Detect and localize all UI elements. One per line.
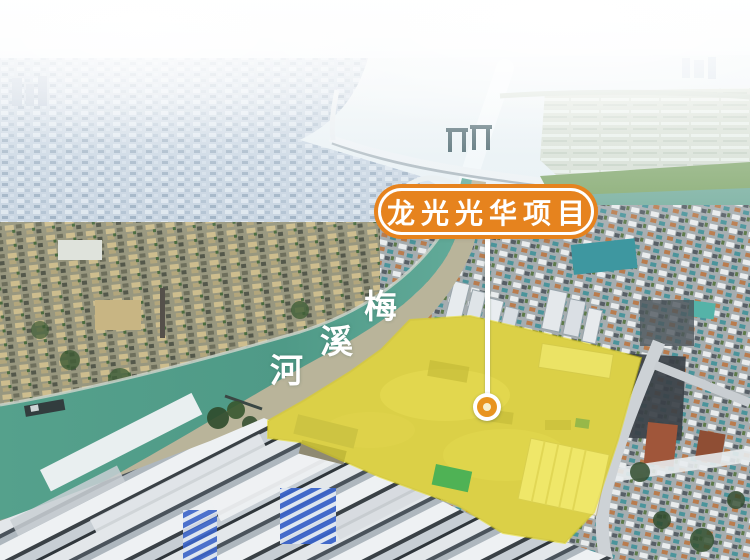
river-label-char-3: 河 xyxy=(270,354,303,387)
project-label-text: 龙光光华项目 xyxy=(381,192,591,232)
river-label-char-2: 溪 xyxy=(320,325,353,358)
blue-roof xyxy=(280,488,336,544)
project-label: 龙光光华项目 xyxy=(378,188,594,235)
marker-core xyxy=(483,403,491,411)
aerial-photo-scene xyxy=(0,0,750,560)
blue-roof xyxy=(183,510,217,560)
river-label-char-1: 梅 xyxy=(364,290,397,323)
leader-line xyxy=(485,233,490,401)
chimney xyxy=(160,288,165,338)
aerial-photo-map: 龙光光华项目 梅 溪 河 xyxy=(0,0,750,560)
project-marker xyxy=(473,393,501,421)
